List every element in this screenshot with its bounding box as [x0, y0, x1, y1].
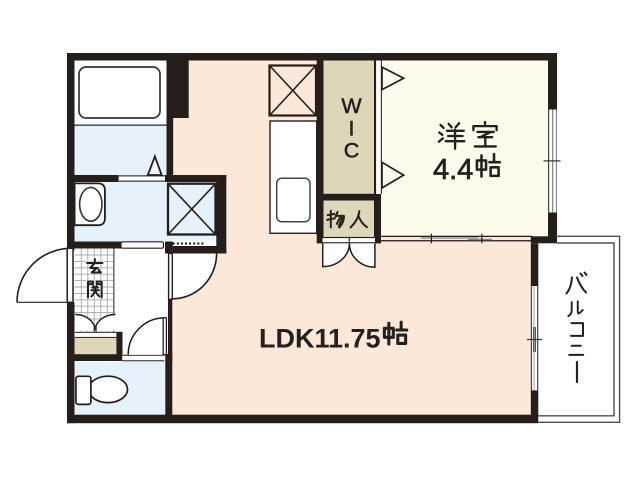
svg-text:C: C — [344, 139, 360, 163]
svg-text:LDK11.75: LDK11.75 — [259, 324, 381, 354]
svg-text:I: I — [349, 116, 355, 140]
svg-text:4.4: 4.4 — [433, 154, 473, 186]
svg-text:W: W — [341, 94, 362, 118]
